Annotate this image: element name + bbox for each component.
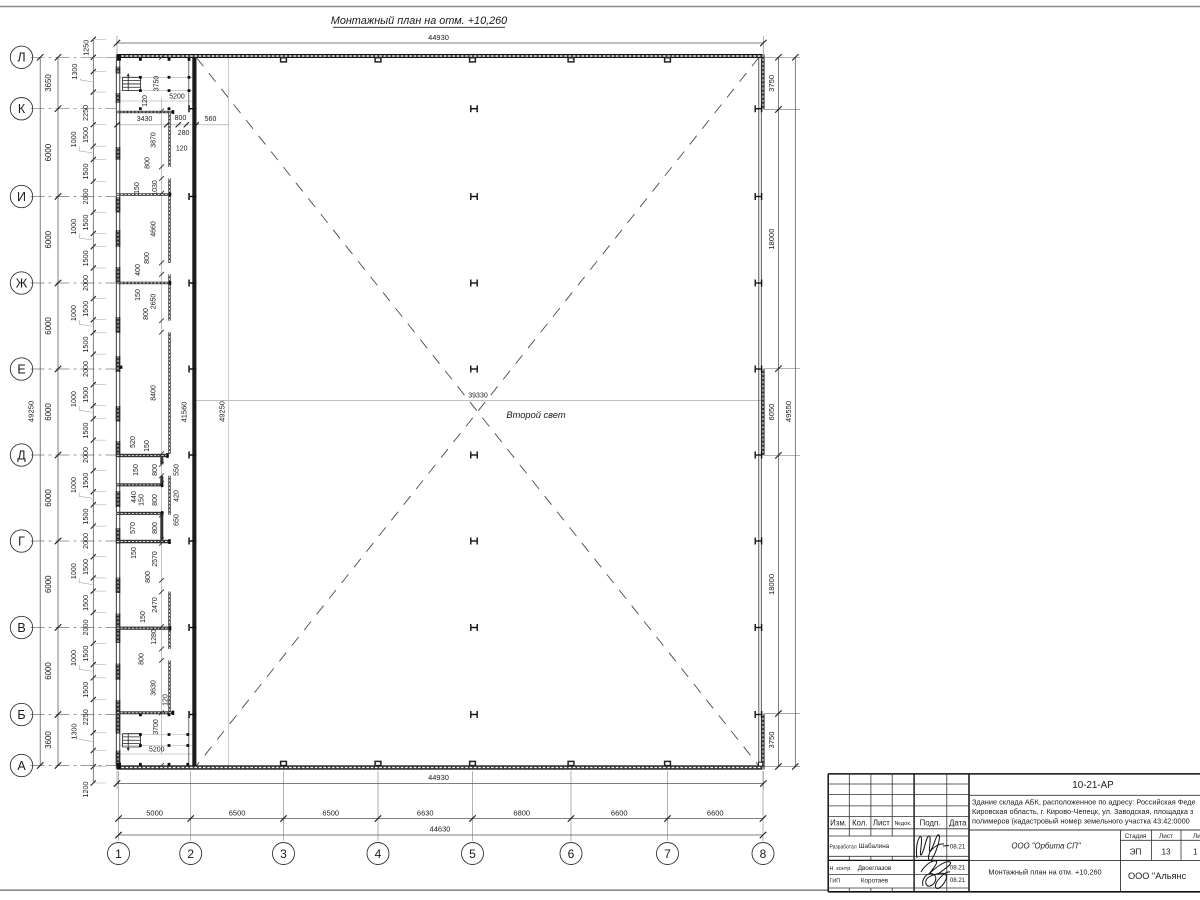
svg-text:41560: 41560 xyxy=(180,402,189,423)
svg-text:Второй свет: Второй свет xyxy=(506,410,565,420)
svg-text:1500: 1500 xyxy=(81,127,90,143)
svg-text:13: 13 xyxy=(1161,848,1171,857)
svg-text:08.21: 08.21 xyxy=(950,865,966,872)
svg-text:800: 800 xyxy=(152,522,159,534)
svg-text:4: 4 xyxy=(375,847,382,861)
svg-text:120: 120 xyxy=(163,694,170,706)
svg-text:08.21: 08.21 xyxy=(950,877,966,884)
svg-text:1000: 1000 xyxy=(69,563,78,579)
svg-text:1200: 1200 xyxy=(81,782,90,798)
svg-text:6: 6 xyxy=(568,847,575,861)
svg-text:150: 150 xyxy=(139,494,146,506)
svg-text:39330: 39330 xyxy=(468,393,488,400)
svg-text:1500: 1500 xyxy=(81,387,90,403)
svg-text:Лист: Лист xyxy=(873,818,890,827)
svg-text:5: 5 xyxy=(469,847,476,861)
svg-text:2470: 2470 xyxy=(152,597,159,613)
svg-text:1500: 1500 xyxy=(81,646,90,662)
svg-text:Ли: Ли xyxy=(1193,833,1200,840)
svg-text:И: И xyxy=(17,190,26,204)
svg-text:560: 560 xyxy=(205,116,217,123)
svg-text:150: 150 xyxy=(140,611,147,623)
svg-text:3870: 3870 xyxy=(150,132,157,148)
svg-text:6600: 6600 xyxy=(611,809,628,818)
svg-text:3750: 3750 xyxy=(154,76,161,92)
svg-text:5000: 5000 xyxy=(146,809,163,818)
svg-text:1500: 1500 xyxy=(81,682,90,698)
svg-text:1000: 1000 xyxy=(69,219,78,235)
svg-text:400: 400 xyxy=(135,264,142,276)
svg-text:800: 800 xyxy=(152,464,159,476)
svg-text:Коротаев: Коротаев xyxy=(861,877,889,884)
svg-text:800: 800 xyxy=(152,494,159,506)
svg-text:Кол.: Кол. xyxy=(852,818,867,827)
svg-text:49550: 49550 xyxy=(784,401,793,422)
svg-text:7: 7 xyxy=(664,847,671,861)
svg-text:3750: 3750 xyxy=(767,75,776,92)
svg-text:2250: 2250 xyxy=(81,709,90,725)
svg-text:ООО "Орбита СП": ООО "Орбита СП" xyxy=(1011,841,1081,850)
svg-text:2650: 2650 xyxy=(150,294,157,310)
svg-text:10-21-АР: 10-21-АР xyxy=(1072,780,1114,791)
svg-text:420: 420 xyxy=(174,490,181,502)
svg-text:Стадия: Стадия xyxy=(1125,833,1147,840)
svg-text:800: 800 xyxy=(175,115,187,122)
svg-text:6500: 6500 xyxy=(322,809,339,818)
svg-text:49250: 49250 xyxy=(218,401,227,422)
svg-text:2000: 2000 xyxy=(81,447,90,463)
svg-text:1500: 1500 xyxy=(81,559,90,575)
svg-text:полимеров (кадастровый номер з: полимеров (кадастровый номер земельного … xyxy=(972,817,1190,826)
svg-text:120: 120 xyxy=(142,95,149,107)
svg-text:18000: 18000 xyxy=(767,229,776,250)
svg-text:1300: 1300 xyxy=(70,64,79,80)
svg-text:ГИП: ГИП xyxy=(830,879,841,885)
svg-text:Л: Л xyxy=(17,51,25,65)
svg-text:520: 520 xyxy=(130,436,137,448)
svg-text:Разработал: Разработал xyxy=(830,845,857,851)
svg-text:1: 1 xyxy=(1193,848,1198,857)
svg-text:3630: 3630 xyxy=(150,680,157,696)
svg-text:2000: 2000 xyxy=(81,361,90,377)
svg-text:3750: 3750 xyxy=(767,732,776,749)
svg-text:440: 440 xyxy=(131,491,138,503)
svg-text:1000: 1000 xyxy=(69,477,78,493)
svg-text:Двоеглазов: Двоеглазов xyxy=(858,865,892,872)
svg-text:Б: Б xyxy=(17,708,25,722)
svg-text:А: А xyxy=(17,759,26,773)
svg-text:6600: 6600 xyxy=(707,809,724,818)
svg-text:1300: 1300 xyxy=(70,724,79,740)
svg-text:2000: 2000 xyxy=(81,620,90,636)
svg-text:Монтажный план на отм. +10,260: Монтажный план на отм. +10,260 xyxy=(331,15,507,27)
svg-text:3650: 3650 xyxy=(44,74,53,92)
svg-text:8400: 8400 xyxy=(151,385,158,401)
svg-text:150: 150 xyxy=(135,289,142,301)
svg-text:6000: 6000 xyxy=(44,662,53,680)
svg-text:ЭП: ЭП xyxy=(1130,848,1142,857)
svg-text:280: 280 xyxy=(178,130,190,137)
svg-text:1000: 1000 xyxy=(69,305,78,321)
svg-text:2000: 2000 xyxy=(81,275,90,291)
svg-text:1500: 1500 xyxy=(81,301,90,317)
svg-text:6000: 6000 xyxy=(44,575,53,593)
svg-text:2570: 2570 xyxy=(152,551,159,567)
svg-text:1: 1 xyxy=(115,847,122,861)
svg-text:3600: 3600 xyxy=(44,731,53,749)
svg-text:800: 800 xyxy=(143,308,150,320)
svg-text:6000: 6000 xyxy=(44,489,53,507)
svg-text:2: 2 xyxy=(187,847,194,861)
svg-text:5200: 5200 xyxy=(149,746,165,753)
svg-text:44630: 44630 xyxy=(430,825,451,834)
svg-text:1500: 1500 xyxy=(81,336,90,352)
svg-text:1500: 1500 xyxy=(81,508,90,524)
svg-text:08.21: 08.21 xyxy=(950,843,966,850)
svg-text:№док.: №док. xyxy=(895,821,912,827)
svg-text:800: 800 xyxy=(144,252,151,264)
svg-text:150: 150 xyxy=(144,440,151,452)
svg-text:Шабалина: Шабалина xyxy=(859,842,890,850)
svg-text:1500: 1500 xyxy=(81,595,90,611)
svg-text:2000: 2000 xyxy=(81,189,90,205)
svg-text:6500: 6500 xyxy=(229,809,246,818)
svg-text:44930: 44930 xyxy=(428,33,449,42)
svg-text:6000: 6000 xyxy=(44,403,53,421)
svg-text:150: 150 xyxy=(134,182,141,194)
svg-text:6000: 6000 xyxy=(44,143,53,161)
svg-text:150: 150 xyxy=(133,464,140,476)
svg-text:3700: 3700 xyxy=(153,719,160,735)
svg-text:Ж: Ж xyxy=(16,276,28,290)
svg-text:650: 650 xyxy=(174,514,181,526)
svg-text:6630: 6630 xyxy=(417,809,434,818)
svg-text:Г: Г xyxy=(18,534,25,548)
svg-text:6000: 6000 xyxy=(44,230,53,248)
svg-text:1500: 1500 xyxy=(81,214,90,230)
svg-text:5200: 5200 xyxy=(169,93,185,100)
svg-text:ООО "Альянс: ООО "Альянс xyxy=(1128,871,1187,881)
svg-text:Подп.: Подп. xyxy=(920,818,941,827)
svg-text:Д: Д xyxy=(17,448,26,462)
svg-text:Лист: Лист xyxy=(1159,833,1173,840)
svg-text:Изм.: Изм. xyxy=(830,818,847,827)
svg-text:3430: 3430 xyxy=(137,116,153,123)
svg-text:Е: Е xyxy=(17,362,25,376)
svg-text:8: 8 xyxy=(760,847,767,861)
svg-text:6050: 6050 xyxy=(767,404,776,421)
svg-text:3: 3 xyxy=(280,847,287,861)
svg-text:800: 800 xyxy=(145,571,152,583)
svg-text:Кировская область, г. Кирово-Ч: Кировская область, г. Кирово-Чепецк, ул.… xyxy=(972,807,1194,816)
svg-text:1030: 1030 xyxy=(152,180,159,196)
svg-text:1500: 1500 xyxy=(81,473,90,489)
svg-text:800: 800 xyxy=(145,157,152,169)
svg-text:150: 150 xyxy=(131,547,138,559)
svg-text:6800: 6800 xyxy=(513,809,530,818)
svg-text:44930: 44930 xyxy=(428,773,449,782)
svg-text:Монтажный план на отм. +10,260: Монтажный план на отм. +10,260 xyxy=(988,867,1101,876)
svg-text:49250: 49250 xyxy=(27,401,36,422)
svg-text:550: 550 xyxy=(174,464,181,476)
svg-text:Дата: Дата xyxy=(949,818,967,827)
svg-text:1500: 1500 xyxy=(81,422,90,438)
svg-text:4660: 4660 xyxy=(150,221,157,237)
svg-text:1000: 1000 xyxy=(69,131,78,147)
svg-text:570: 570 xyxy=(130,522,137,534)
svg-text:2250: 2250 xyxy=(81,105,90,121)
svg-text:6000: 6000 xyxy=(44,317,53,335)
svg-text:18000: 18000 xyxy=(767,574,776,595)
svg-text:1280: 1280 xyxy=(151,629,158,645)
svg-text:1500: 1500 xyxy=(81,250,90,266)
svg-text:120: 120 xyxy=(176,146,188,153)
svg-text:Здание склада АБК, расположенн: Здание склада АБК, расположенное по адре… xyxy=(972,798,1196,807)
svg-text:К: К xyxy=(18,102,26,116)
svg-text:1250: 1250 xyxy=(82,40,91,56)
svg-text:1000: 1000 xyxy=(69,650,78,666)
svg-text:1500: 1500 xyxy=(81,163,90,179)
svg-text:1000: 1000 xyxy=(69,391,78,407)
svg-text:800: 800 xyxy=(139,653,146,665)
svg-text:Н. контр.: Н. контр. xyxy=(830,866,852,872)
svg-text:2000: 2000 xyxy=(81,533,90,549)
svg-text:В: В xyxy=(17,621,25,635)
